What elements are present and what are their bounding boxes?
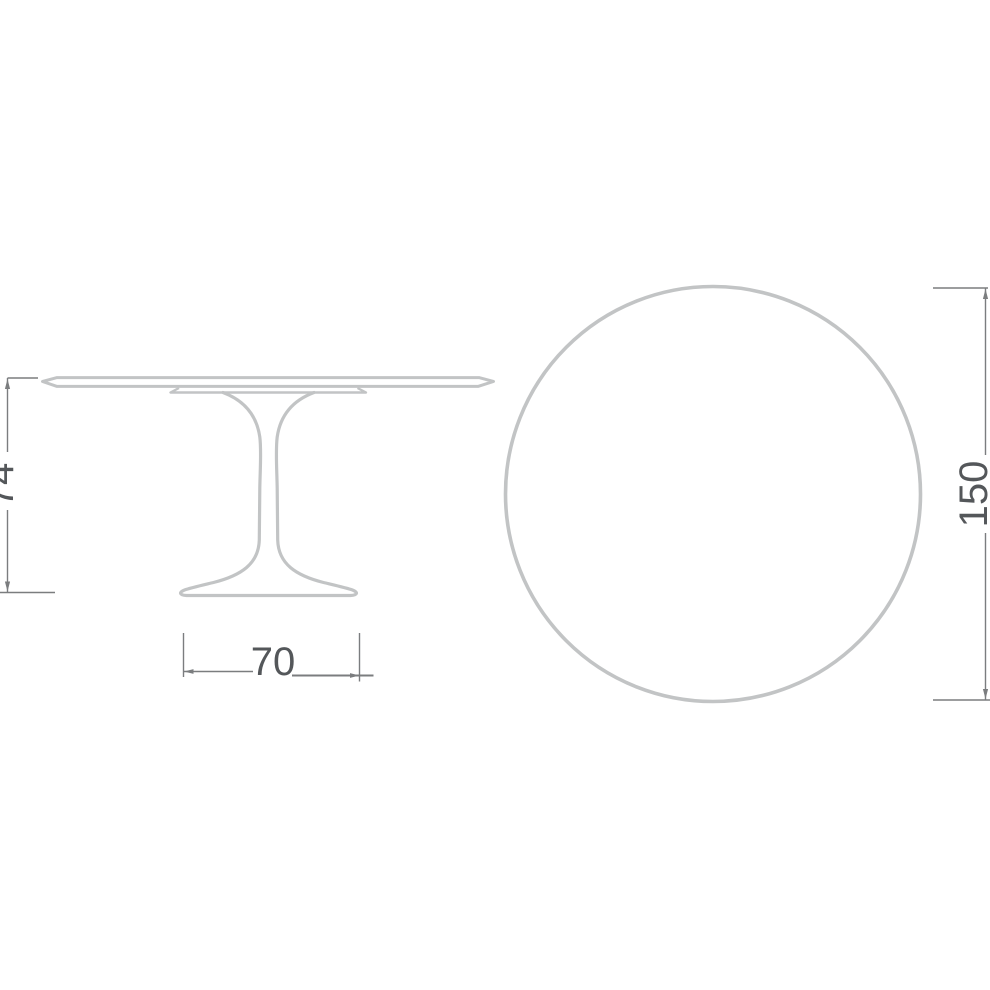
dimension-arrow-up bbox=[983, 289, 988, 299]
top-plan-view bbox=[506, 287, 921, 702]
pedestal-mounting-plate bbox=[171, 388, 367, 393]
side-elevation-view bbox=[43, 378, 494, 596]
diameter-dimension-label: 150 bbox=[954, 444, 990, 544]
dimension-arrow-left bbox=[184, 669, 194, 674]
pedestal-stem-outline bbox=[181, 393, 357, 596]
base-width-dimension-label: 70 bbox=[233, 642, 313, 682]
tabletop-profile bbox=[43, 378, 494, 387]
technical-drawing-canvas: 74 70 150 bbox=[0, 0, 990, 990]
tulip-table-line-drawing bbox=[0, 0, 990, 990]
tabletop-circle-outline bbox=[506, 287, 921, 702]
dimension-arrow-down bbox=[5, 582, 10, 592]
height-dimension-label: 74 bbox=[0, 445, 20, 525]
dimension-arrow-right bbox=[350, 673, 360, 678]
dimension-arrow-up bbox=[5, 379, 10, 389]
dimension-arrow-down bbox=[983, 689, 988, 699]
